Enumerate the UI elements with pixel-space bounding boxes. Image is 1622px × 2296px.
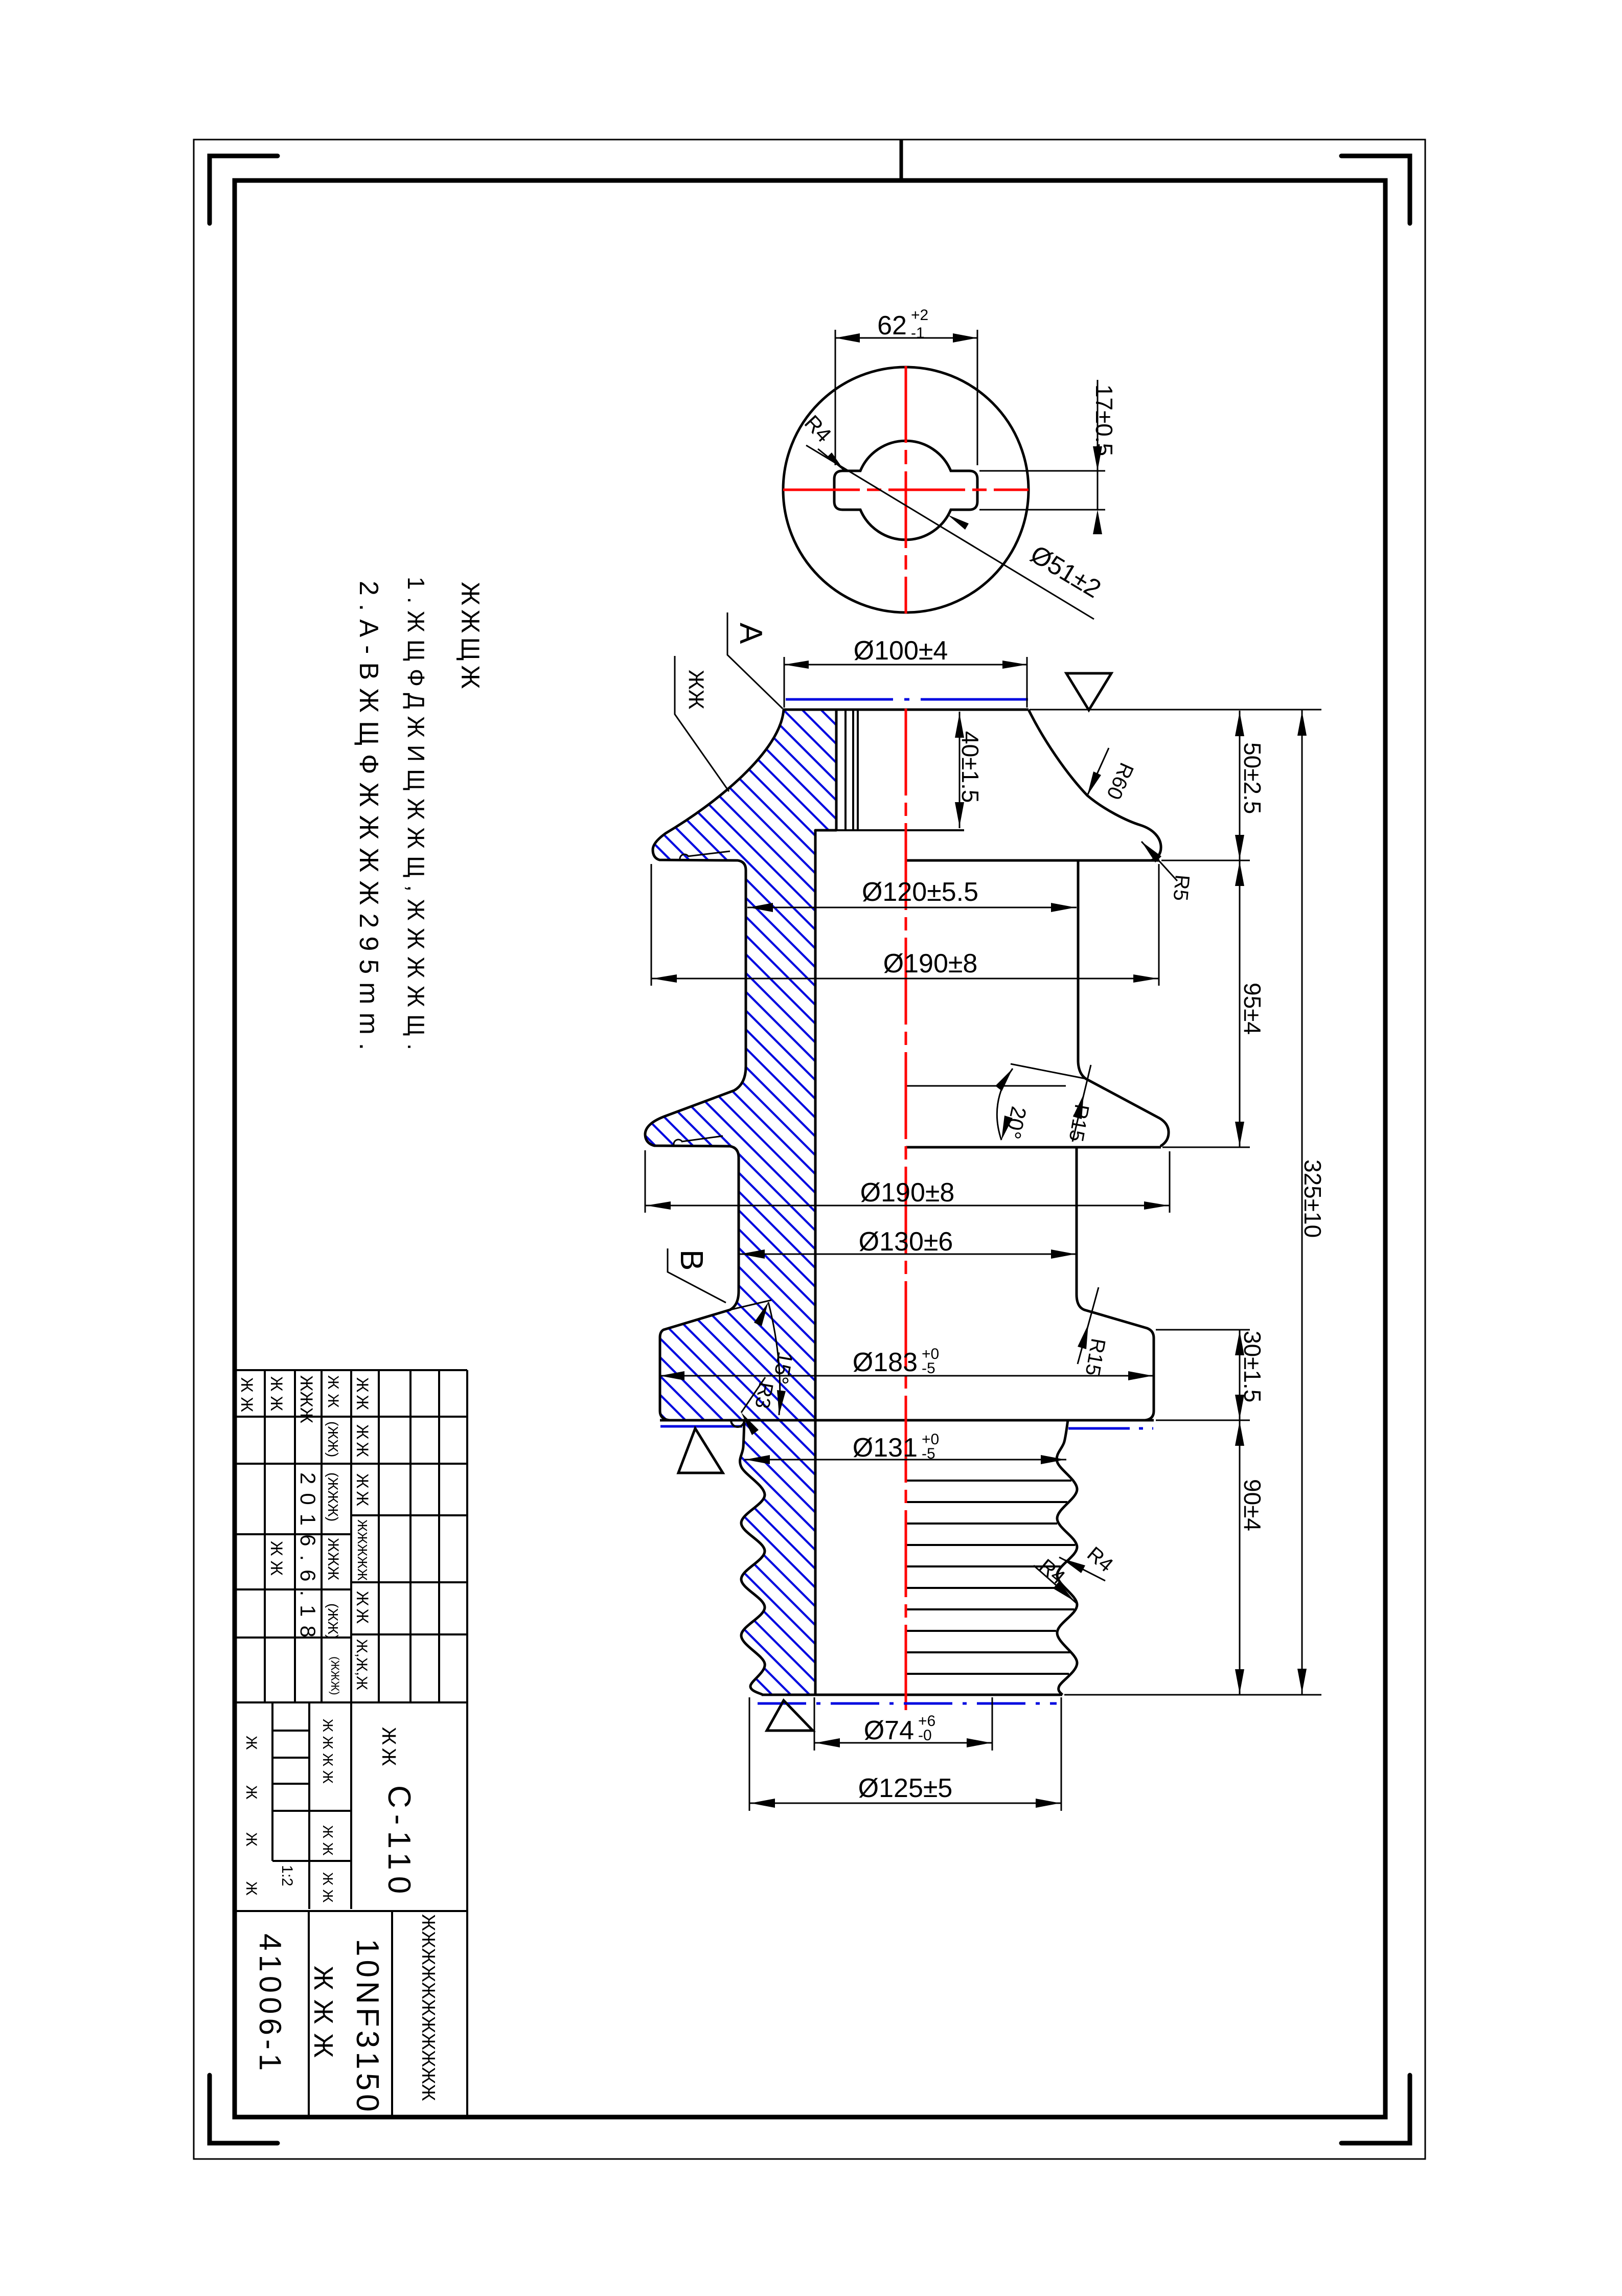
svg-text:Ø130±6: Ø130±6 xyxy=(859,1227,953,1257)
svg-text:90±4: 90±4 xyxy=(1239,1479,1266,1531)
svg-text:Ж Ж: Ж Ж xyxy=(325,1375,341,1408)
svg-text:ЖЖ: ЖЖ xyxy=(684,670,709,710)
svg-text:Ø190±8: Ø190±8 xyxy=(883,949,978,979)
svg-text:Ж Ж: Ж Ж xyxy=(267,1541,286,1576)
svg-text:ЖЖЖ: ЖЖЖ xyxy=(296,1375,316,1423)
svg-text:Ø183: Ø183 xyxy=(853,1348,918,1377)
svg-text:ЖЖЩЖ: ЖЖЩЖ xyxy=(456,582,485,693)
svg-text:-0: -0 xyxy=(918,1727,932,1744)
svg-text:R3: R3 xyxy=(750,1380,777,1410)
svg-text:+2: +2 xyxy=(911,307,928,324)
svg-text:Ж,Ж,Ж: Ж,Ж,Ж xyxy=(353,1639,370,1690)
svg-text:2.A-BЖЩФЖЖЖЖ295mm.: 2.A-BЖЩФЖЖЖЖ295mm. xyxy=(354,581,383,1058)
svg-text:1.ЖЩФДЖИЩЖЖЩ,ЖЖЖЖЩ.: 1.ЖЩФДЖИЩЖЖЩ,ЖЖЖЖЩ. xyxy=(403,577,429,1057)
svg-text:(ЖЖ): (ЖЖ) xyxy=(325,1603,341,1639)
svg-text:Ж Ж: Ж Ж xyxy=(238,1377,256,1412)
svg-text:ЖЖЖЖЖЖЖЖЖЖЖ: ЖЖЖЖЖЖЖЖЖЖЖ xyxy=(418,1914,439,2101)
svg-text:Ø190±8: Ø190±8 xyxy=(860,1178,955,1208)
svg-text:ЖЖ: ЖЖ xyxy=(378,1727,399,1769)
svg-text:ЖЖЖ: ЖЖЖ xyxy=(325,1538,341,1580)
svg-text:Ж Ж Ж Ж: Ж Ж Ж Ж xyxy=(320,1719,336,1784)
svg-text:50±2.5: 50±2.5 xyxy=(1239,742,1266,814)
svg-text:Ø125±5: Ø125±5 xyxy=(858,1774,953,1803)
svg-text:Ж: Ж xyxy=(243,1832,260,1847)
svg-text:-5: -5 xyxy=(922,1445,935,1462)
svg-text:ЖЖЖ: ЖЖЖ xyxy=(308,1966,338,2067)
svg-text:10NF3150: 10NF3150 xyxy=(350,1939,385,2116)
svg-text:-1: -1 xyxy=(911,325,925,342)
svg-text:Ø131: Ø131 xyxy=(853,1433,918,1463)
svg-text:Ж Ж: Ж Ж xyxy=(320,1872,336,1903)
svg-text:41006-1: 41006-1 xyxy=(253,1934,287,2075)
svg-text:ЖЖ: ЖЖ xyxy=(353,1473,372,1509)
svg-text:40±1.5: 40±1.5 xyxy=(957,731,984,803)
svg-text:ЖЖЖЖЖ: ЖЖЖЖЖ xyxy=(355,1519,370,1581)
svg-text:C-110: C-110 xyxy=(381,1785,417,1900)
svg-text:62: 62 xyxy=(877,311,907,340)
svg-text:ЖЖ: ЖЖ xyxy=(353,1591,372,1626)
svg-text:2016.6.18: 2016.6.18 xyxy=(296,1472,320,1646)
svg-text:Ж Ж: Ж Ж xyxy=(320,1825,336,1856)
svg-text:ЖЖ: ЖЖ xyxy=(353,1424,372,1460)
svg-text:325±10: 325±10 xyxy=(1299,1160,1326,1238)
svg-text:30±1.5: 30±1.5 xyxy=(1239,1331,1266,1402)
svg-text:(ЖЖЖ): (ЖЖЖ) xyxy=(329,1656,341,1695)
svg-text:1:2: 1:2 xyxy=(279,1865,295,1886)
svg-text:B: B xyxy=(674,1249,709,1270)
svg-text:17±0.5: 17±0.5 xyxy=(1091,384,1117,456)
svg-text:Ж: Ж xyxy=(243,1736,260,1750)
svg-text:ЖЖ: ЖЖ xyxy=(353,1377,372,1413)
svg-text:R5: R5 xyxy=(1169,874,1194,902)
svg-text:Ж Ж: Ж Ж xyxy=(267,1376,286,1411)
svg-text:A: A xyxy=(733,623,768,644)
svg-text:Ø74: Ø74 xyxy=(864,1716,914,1745)
svg-text:(ЖЖ): (ЖЖ) xyxy=(325,1421,341,1457)
svg-text:Ж: Ж xyxy=(243,1785,260,1800)
svg-text:Ж: Ж xyxy=(243,1881,260,1896)
svg-text:-5: -5 xyxy=(922,1360,935,1377)
svg-text:95±4: 95±4 xyxy=(1239,983,1266,1035)
svg-text:(ЖЖЖ): (ЖЖЖ) xyxy=(325,1472,341,1521)
svg-text:Ø120±5.5: Ø120±5.5 xyxy=(862,877,978,907)
svg-text:Ø100±4: Ø100±4 xyxy=(854,636,948,666)
